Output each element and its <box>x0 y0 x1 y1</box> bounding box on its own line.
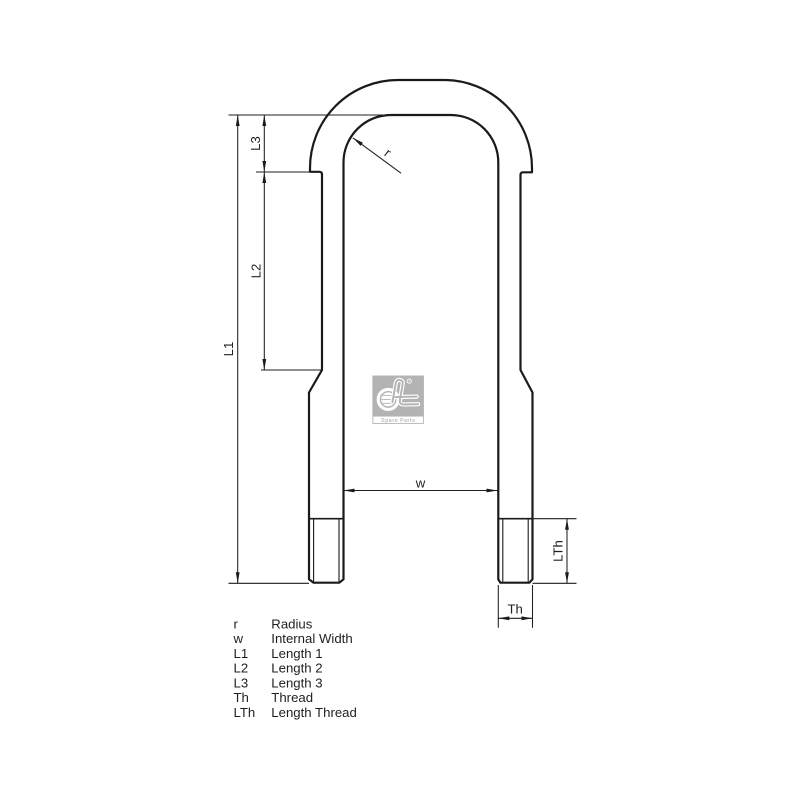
svg-text:L1: L1 <box>221 342 236 357</box>
svg-text:L3: L3 <box>234 675 249 690</box>
svg-text:L1: L1 <box>234 646 249 661</box>
svg-text:r: r <box>382 145 395 160</box>
svg-text:LTh: LTh <box>550 540 565 562</box>
svg-text:w: w <box>415 476 426 491</box>
svg-text:r: r <box>234 616 239 631</box>
svg-text:Length 1: Length 1 <box>271 646 322 661</box>
svg-text:L2: L2 <box>234 661 249 676</box>
svg-text:w: w <box>233 631 244 646</box>
svg-text:Th: Th <box>508 602 523 617</box>
svg-text:Length 2: Length 2 <box>271 661 322 676</box>
svg-text:Length 3: Length 3 <box>271 675 322 690</box>
svg-text:Spare Parts: Spare Parts <box>381 418 415 424</box>
svg-text:L2: L2 <box>249 264 264 279</box>
svg-text:LTh: LTh <box>234 705 256 720</box>
svg-text:Th: Th <box>234 690 249 705</box>
svg-text:Thread: Thread <box>271 690 313 705</box>
svg-text:Internal Width: Internal Width <box>271 631 352 646</box>
svg-text:L3: L3 <box>248 136 263 151</box>
svg-text:Radius: Radius <box>271 616 312 631</box>
svg-text:Length Thread: Length Thread <box>271 705 357 720</box>
